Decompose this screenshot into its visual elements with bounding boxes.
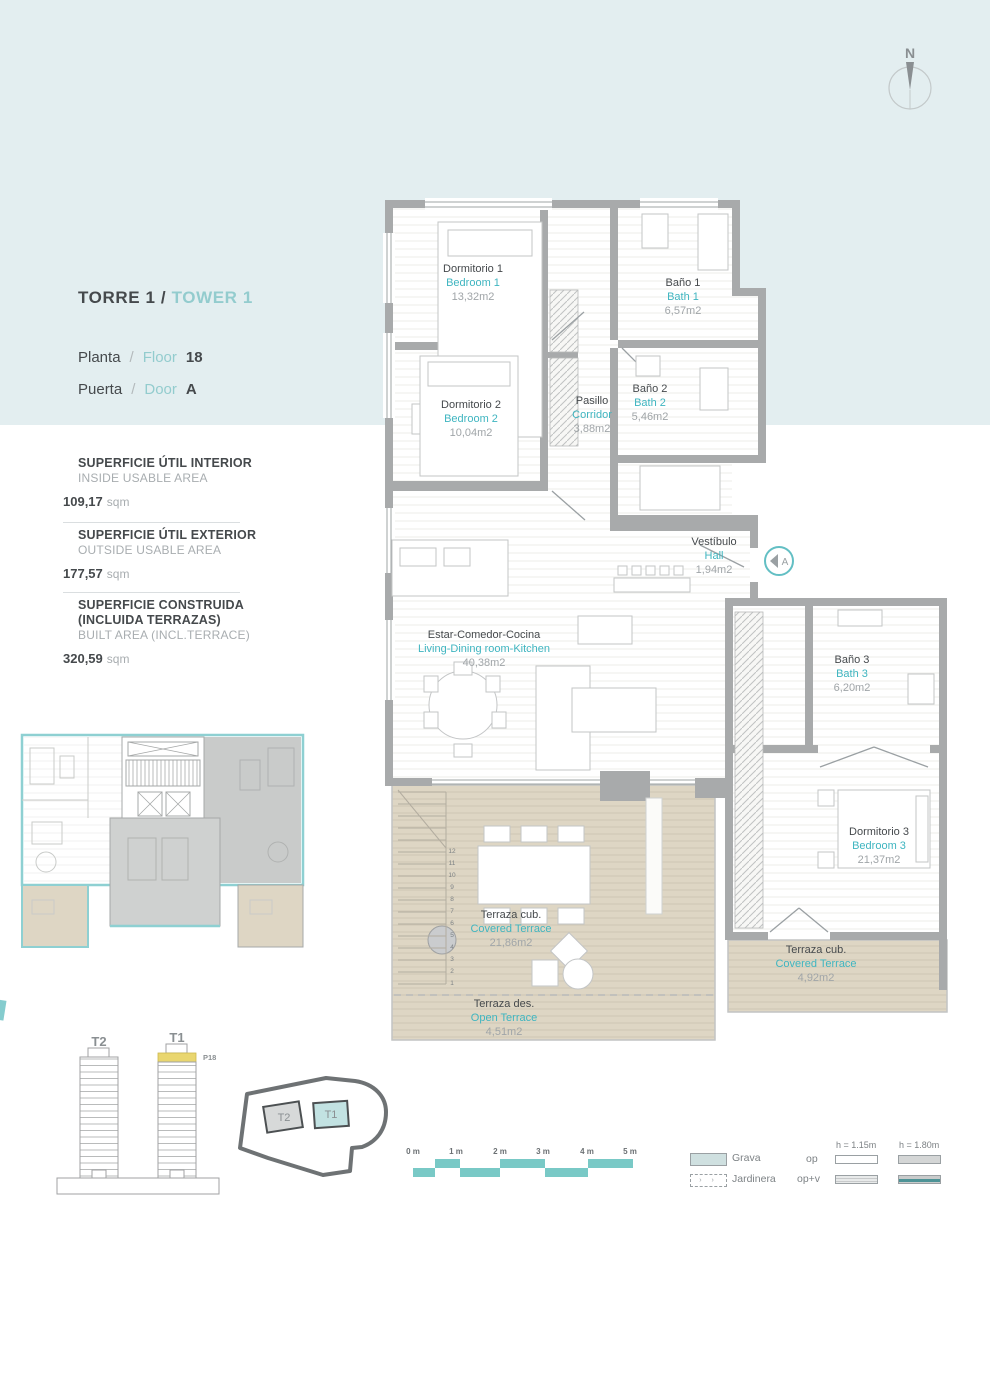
scale-label: 4 m — [580, 1147, 594, 1156]
floor-18-tag: P18 — [203, 1053, 216, 1062]
room-name-es: Baño 2 — [632, 382, 669, 396]
area-title-es: SUPERFICIE ÚTIL EXTERIOR — [78, 528, 268, 543]
room-area: 40,38m2 — [418, 656, 550, 670]
floor-row-sep: / — [121, 349, 143, 366]
room-name-en: Corridor — [572, 408, 612, 422]
room-name-es: Terraza cub. — [470, 908, 551, 922]
door-row-sep: / — [122, 381, 144, 398]
room-label-covered-terrace-1: Terraza cub. Covered Terrace 21,86m2 — [470, 908, 551, 950]
opv-h115-sample — [835, 1175, 878, 1184]
room-name-es: Baño 3 — [834, 653, 871, 667]
tower-elevations: T2 T1 P18 — [57, 1030, 219, 1194]
key-plan — [22, 735, 303, 947]
room-name-es: Vestíbulo — [691, 535, 736, 549]
scale-segment — [588, 1159, 633, 1168]
svg-text:4: 4 — [450, 944, 454, 951]
room-name-en: Living-Dining room-Kitchen — [418, 642, 550, 656]
compass-north-label: N — [905, 45, 915, 61]
room-name-en: Bath 2 — [632, 396, 669, 410]
area-title-en: BUILT AREA (INCL.TERRACE) — [78, 628, 268, 643]
room-area: 21,86m2 — [470, 936, 551, 950]
area-value: 109,17sqm — [63, 494, 268, 509]
room-name-en: Covered Terrace — [470, 922, 551, 936]
room-name-en: Bedroom 1 — [443, 276, 503, 290]
area-title-en: INSIDE USABLE AREA — [78, 471, 268, 486]
svg-text:10: 10 — [448, 872, 456, 879]
room-name-es: Baño 1 — [665, 276, 702, 290]
page-edge-mark — [0, 1000, 7, 1021]
room-name-en: Bath 3 — [834, 667, 871, 681]
svg-text:7: 7 — [450, 908, 454, 915]
door-row: Puerta/DoorA — [78, 381, 197, 398]
key-plan-core — [122, 737, 204, 818]
room-name-en: Open Terrace — [471, 1011, 537, 1025]
room-name-es: Dormitorio 2 — [441, 398, 501, 412]
tower-t2-label: T2 — [91, 1034, 106, 1049]
svg-text:2: 2 — [450, 968, 454, 975]
scale-segment — [500, 1159, 545, 1168]
scale-segment — [460, 1168, 500, 1177]
room-label-bath1: Baño 1 Bath 1 6,57m2 — [665, 276, 702, 318]
floor-label: Floor — [143, 349, 177, 366]
compass-icon: N — [889, 45, 931, 109]
scale-segment — [545, 1168, 588, 1177]
room-label-hall: Vestíbulo Hall 1,94m2 — [691, 535, 736, 577]
room-area: 5,46m2 — [632, 410, 669, 424]
scale-segment — [413, 1168, 435, 1177]
height-180-label: h = 1.80m — [899, 1140, 939, 1150]
room-name-es: Terraza des. — [471, 997, 537, 1011]
entry-door-badge: A — [765, 547, 793, 575]
planta-label: Planta — [78, 349, 121, 366]
room-name-es: Dormitorio 3 — [849, 825, 909, 839]
room-name-es: Pasillo — [572, 394, 612, 408]
room-area: 4,92m2 — [775, 971, 856, 985]
scale-label: 3 m — [536, 1147, 550, 1156]
room-label-dorm2: Dormitorio 2 Bedroom 2 10,04m2 — [441, 398, 501, 440]
height-115-label: h = 1.15m — [836, 1140, 876, 1150]
svg-text:6: 6 — [450, 920, 454, 927]
room-label-living: Estar-Comedor-Cocina Living-Dining room-… — [418, 628, 550, 670]
area-title-es: SUPERFICIE CONSTRUIDA (INCLUIDA TERRAZAS… — [78, 598, 263, 628]
room-area: 21,37m2 — [849, 853, 909, 867]
floorplan-page: { "header": { "torre": "TORRE 1", "sep":… — [0, 0, 990, 1400]
scale-label: 1 m — [449, 1147, 463, 1156]
room-label-dorm3: Dormitorio 3 Bedroom 3 21,37m2 — [849, 825, 909, 867]
room-area: 4,51m2 — [471, 1025, 537, 1039]
room-label-bath3: Baño 3 Bath 3 6,20m2 — [834, 653, 871, 695]
room-label-open-terrace: Terraza des. Open Terrace 4,51m2 — [471, 997, 537, 1039]
svg-text:11: 11 — [449, 860, 456, 867]
area-block-exterior: SUPERFICIE ÚTIL EXTERIOR OUTSIDE USABLE … — [78, 528, 268, 581]
puerta-label: Puerta — [78, 381, 122, 398]
room-label-bath2: Baño 2 Bath 2 5,46m2 — [632, 382, 669, 424]
floor-row: Planta/Floor18 — [78, 349, 203, 366]
title-torre: TORRE 1 — [78, 288, 156, 307]
area-unit: sqm — [103, 567, 130, 581]
scale-segment — [435, 1159, 460, 1168]
room-name-en: Hall — [691, 549, 736, 563]
svg-text:3: 3 — [450, 956, 454, 963]
divider — [63, 592, 240, 593]
grava-label: Grava — [732, 1152, 761, 1164]
op-h180-sample — [898, 1155, 941, 1164]
door-label: Door — [144, 381, 177, 398]
room-area: 6,20m2 — [834, 681, 871, 695]
op-h115-sample — [835, 1155, 878, 1164]
room-area: 6,57m2 — [665, 304, 702, 318]
room-name-es: Terraza cub. — [775, 943, 856, 957]
area-title-es: SUPERFICIE ÚTIL INTERIOR — [78, 456, 268, 471]
jardinera-label: Jardinera — [732, 1173, 776, 1185]
scale-label: 2 m — [493, 1147, 507, 1156]
title-sep: / — [161, 288, 166, 307]
site-t2-label: T2 — [278, 1112, 291, 1124]
room-name-es: Estar-Comedor-Cocina — [418, 628, 550, 642]
area-block-built: SUPERFICIE CONSTRUIDA (INCLUIDA TERRAZAS… — [78, 598, 268, 666]
area-value: 320,59sqm — [63, 651, 268, 666]
room-area: 3,88m2 — [572, 422, 612, 436]
area-title-en: OUTSIDE USABLE AREA — [78, 543, 268, 558]
room-name-en: Bedroom 2 — [441, 412, 501, 426]
apartment-plan: 1211 109 87 65 43 21 A — [383, 198, 947, 1040]
site-t1-label: T1 — [325, 1109, 338, 1121]
svg-text:8: 8 — [450, 896, 454, 903]
jardinera-swatch: › › — [690, 1174, 727, 1187]
op-label: op — [806, 1153, 818, 1165]
scale-label: 0 m — [406, 1147, 420, 1156]
room-label-covered-terrace-2: Terraza cub. Covered Terrace 4,92m2 — [775, 943, 856, 985]
room-area: 13,32m2 — [443, 290, 503, 304]
area-unit: sqm — [103, 495, 130, 509]
room-name-en: Bedroom 3 — [849, 839, 909, 853]
area-block-interior: SUPERFICIE ÚTIL INTERIOR INSIDE USABLE A… — [78, 456, 268, 509]
room-label-dorm1: Dormitorio 1 Bedroom 1 13,32m2 — [443, 262, 503, 304]
tower-t1-label: T1 — [169, 1030, 184, 1045]
opv-h180-sample — [898, 1175, 941, 1184]
title-tower: TOWER 1 — [172, 288, 253, 307]
room-name-en: Covered Terrace — [775, 957, 856, 971]
room-name-en: Bath 1 — [665, 290, 702, 304]
site-plan: T2 T1 — [240, 1078, 386, 1175]
divider — [63, 522, 240, 523]
highlighted-floor-18 — [158, 1053, 196, 1062]
scale-label: 5 m — [623, 1147, 637, 1156]
area-value: 177,57sqm — [63, 566, 268, 581]
svg-text:5: 5 — [450, 932, 454, 939]
door-value: A — [177, 381, 197, 398]
room-name-es: Dormitorio 1 — [443, 262, 503, 276]
svg-text:12: 12 — [448, 848, 456, 855]
svg-text:1: 1 — [450, 980, 454, 987]
room-area: 1,94m2 — [691, 563, 736, 577]
grava-swatch — [690, 1153, 727, 1166]
floor-value: 18 — [177, 349, 203, 366]
page-title: TORRE 1 / TOWER 1 — [78, 288, 253, 308]
area-unit: sqm — [103, 652, 130, 666]
svg-text:9: 9 — [450, 884, 454, 891]
room-area: 10,04m2 — [441, 426, 501, 440]
entry-badge-letter: A — [782, 557, 789, 568]
room-label-pasillo: Pasillo Corridor 3,88m2 — [572, 394, 612, 436]
floor-plan-svg: N — [0, 0, 990, 1400]
op-v-label: op+v — [797, 1173, 820, 1185]
